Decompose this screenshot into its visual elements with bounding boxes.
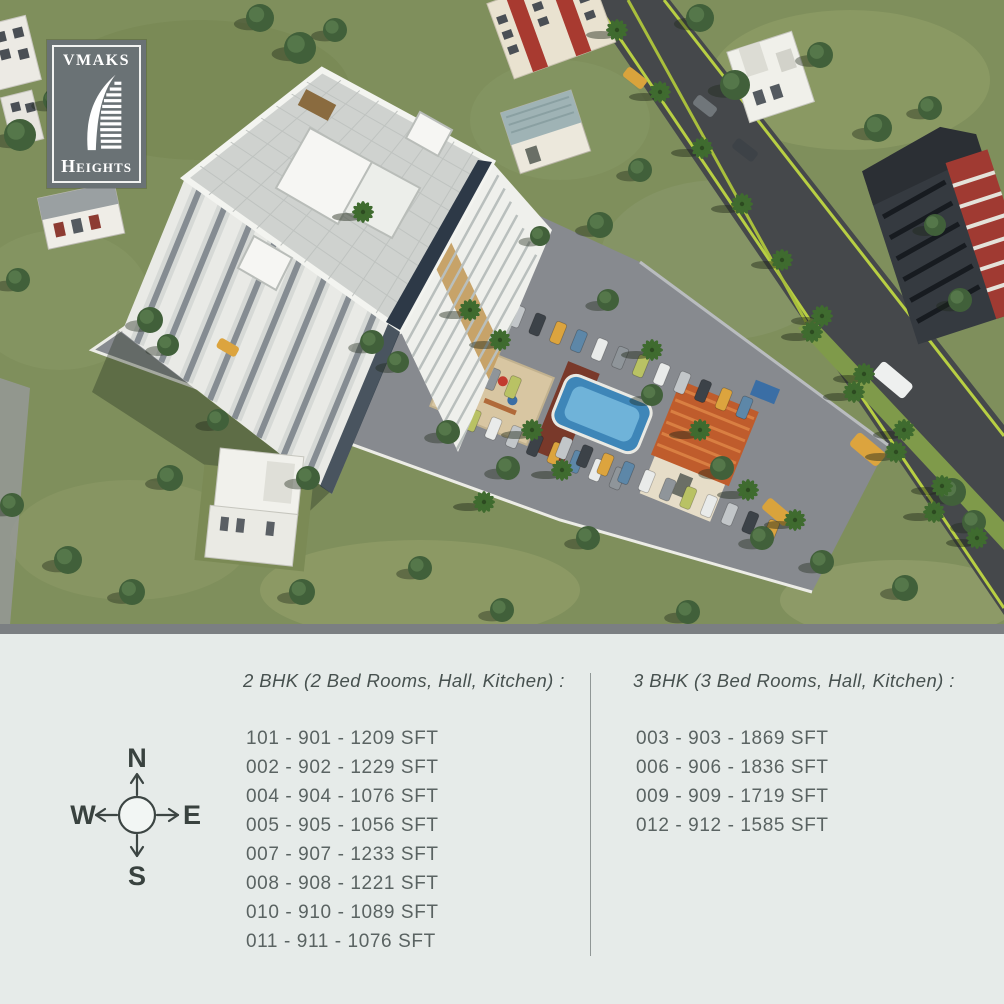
compass-south-label: S xyxy=(128,861,146,891)
unit-row: 002 - 902 - 1229 SFT xyxy=(246,753,439,782)
unit-row: 012 - 912 - 1585 SFT xyxy=(636,811,829,840)
column-divider xyxy=(590,673,591,956)
unit-row: 008 - 908 - 1221 SFT xyxy=(246,869,439,898)
unit-row: 007 - 907 - 1233 SFT xyxy=(246,840,439,869)
unit-row: 006 - 906 - 1836 SFT xyxy=(636,753,829,782)
bhk2-unit-list: 101 - 901 - 1209 SFT 002 - 902 - 1229 SF… xyxy=(246,724,439,956)
unit-row: 004 - 904 - 1076 SFT xyxy=(246,782,439,811)
site-render xyxy=(0,0,1004,625)
unit-row: 010 - 910 - 1089 SFT xyxy=(246,898,439,927)
logo-product-text: Heights xyxy=(61,156,132,177)
compass-hub xyxy=(119,797,155,833)
bhk2-heading: 2 BHK (2 Bed Rooms, Hall, Kitchen) : xyxy=(243,670,565,692)
compass-north-label: N xyxy=(127,743,147,773)
vmaks-heights-logo: VMAKS Heights xyxy=(47,40,146,188)
bhk3-heading: 3 BHK (3 Bed Rooms, Hall, Kitchen) : xyxy=(633,670,955,692)
sail-tower-icon xyxy=(68,70,126,156)
logo-brand-text: VMAKS xyxy=(63,52,130,70)
compass-rose: N S W E xyxy=(57,735,217,895)
separator-bar xyxy=(0,624,1004,634)
site-render-canvas xyxy=(0,0,1004,625)
unit-row: 009 - 909 - 1719 SFT xyxy=(636,782,829,811)
brochure-page: VMAKS Heights xyxy=(0,0,1004,1004)
compass-west-label: W xyxy=(70,800,96,830)
unit-row: 005 - 905 - 1056 SFT xyxy=(246,811,439,840)
bhk3-unit-list: 003 - 903 - 1869 SFT 006 - 906 - 1836 SF… xyxy=(636,724,829,840)
unit-row: 003 - 903 - 1869 SFT xyxy=(636,724,829,753)
compass-east-label: E xyxy=(183,800,201,830)
unit-row: 011 - 911 - 1076 SFT xyxy=(246,927,439,956)
unit-row: 101 - 901 - 1209 SFT xyxy=(246,724,439,753)
